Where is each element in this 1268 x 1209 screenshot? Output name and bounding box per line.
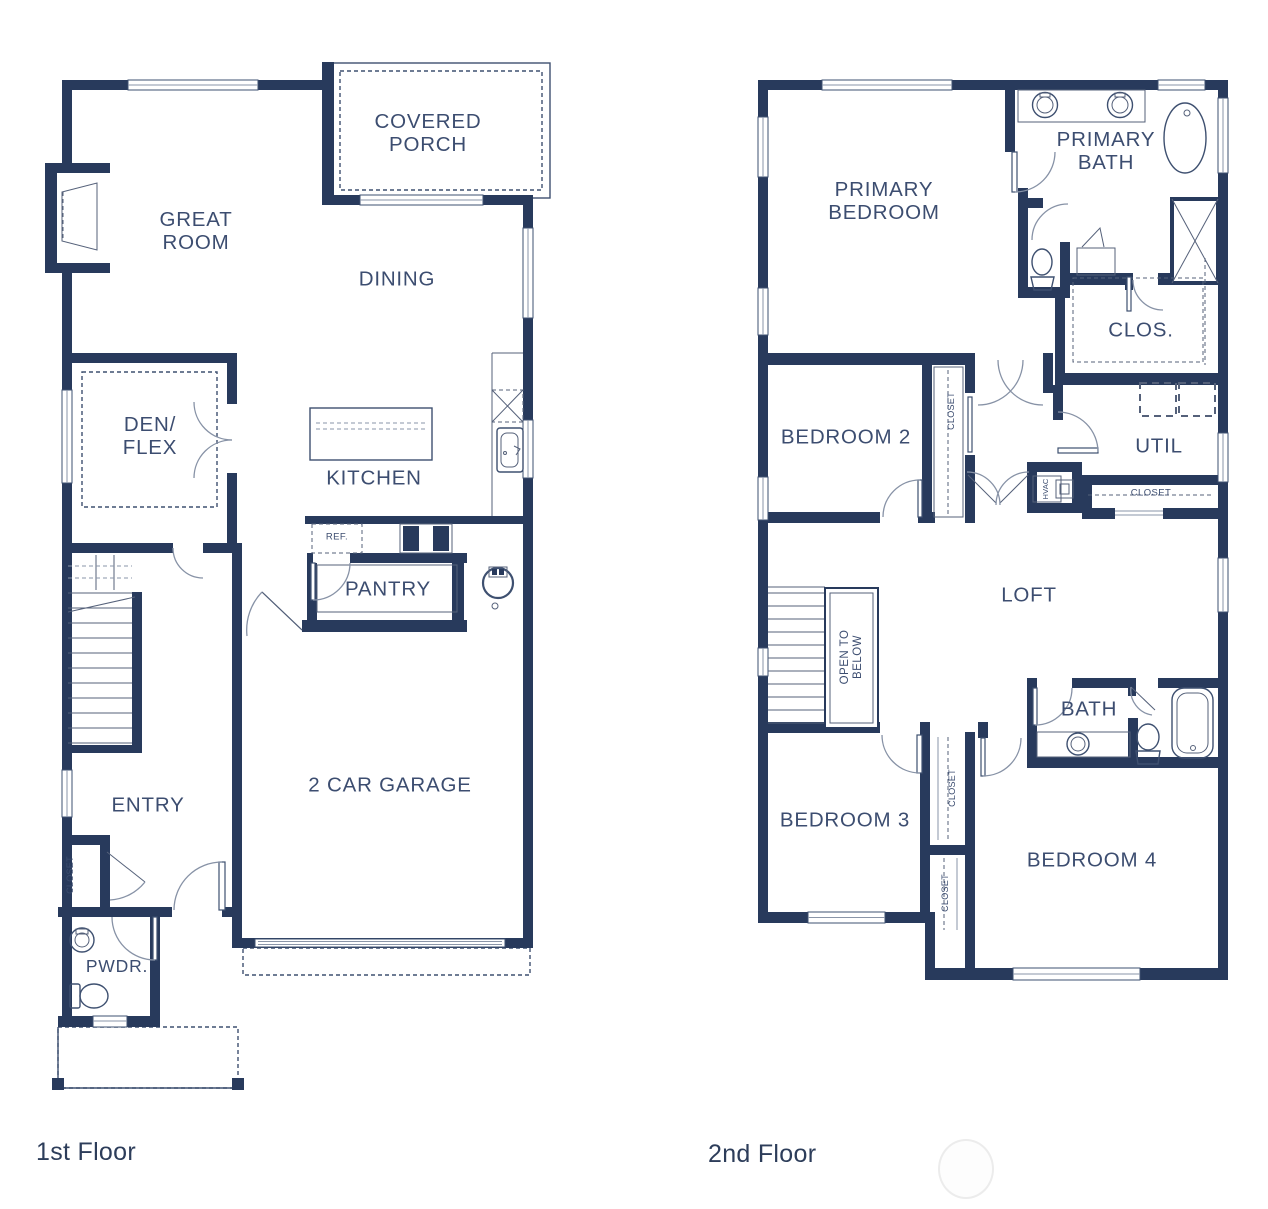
room-label-bedroom4: BEDROOM 4 [1027, 850, 1157, 873]
driveway-apron-outline [243, 948, 530, 975]
primary-toilet-icon [1031, 249, 1054, 290]
fireplace-niche [45, 163, 110, 273]
room-label-great-room: GREAT ROOM [159, 209, 232, 255]
watermark-circle [938, 1139, 994, 1199]
room-label-covered-porch: COVERED PORCH [375, 111, 482, 157]
shower-icon [1172, 199, 1218, 283]
room-label-dining: DINING [359, 269, 436, 292]
bath2-tub-icon [1172, 688, 1213, 758]
floor-plan-graphics [0, 0, 1268, 1209]
kitchen-sink-icon [497, 428, 523, 472]
floor1-walls [52, 62, 533, 1090]
room-label-bath: BATH [1061, 699, 1117, 722]
room-label-garage: 2 CAR GARAGE [308, 775, 471, 798]
primary-tub-icon [1164, 103, 1206, 173]
garage-door [255, 939, 505, 947]
room-label-kitchen: KITCHEN [326, 468, 422, 491]
hvac-unit-icon [1033, 476, 1073, 502]
label-bedroom4-closet: CLOSET [940, 874, 950, 912]
room-label-util: UTIL [1135, 436, 1183, 459]
powder-sink-icon [70, 928, 94, 952]
entry-stoop-outline [58, 1027, 238, 1088]
room-label-pantry: PANTRY [345, 579, 431, 602]
kitchen-island [310, 408, 432, 460]
linen-cabinet [1077, 228, 1115, 275]
room-label-bedroom2: BEDROOM 2 [781, 427, 911, 450]
washer-dryer-boxes [1140, 383, 1215, 416]
room-label-pwdr: PWDR. [86, 957, 148, 977]
stairs-second-floor [768, 587, 825, 723]
room-label-entry: ENTRY [111, 795, 184, 818]
label-hvac: HVAC [1042, 478, 1050, 499]
floor1-plan [45, 62, 550, 1090]
label-refrigerator: REF. [326, 533, 348, 544]
label-bedroom3-closet: CLOSET [947, 769, 957, 807]
powder-toilet-icon [70, 984, 108, 1008]
label-hall-closet: CLOSET [1131, 489, 1171, 500]
bath2-vanity [1037, 732, 1130, 757]
room-label-den-flex: DEN/ FLEX [123, 414, 177, 460]
room-label-clos: CLOS. [1108, 320, 1174, 343]
label-open-to-below: OPEN TO BELOW [839, 630, 865, 685]
label-bedroom2-closet: CLOSET [946, 392, 956, 430]
floor2-caption: 2nd Floor [708, 1140, 816, 1169]
room-label-loft: LOFT [1001, 585, 1057, 608]
primary-vanity [1018, 90, 1145, 122]
range-icon [400, 524, 452, 553]
stairs-first-floor [68, 555, 135, 743]
room-label-primary-bath: PRIMARY BATH [1057, 129, 1156, 175]
room-label-primary-bedroom: PRIMARY BEDROOM [828, 179, 940, 225]
floor-plan-page: COVERED PORCH GREAT ROOM DINING DEN/ FLE… [0, 0, 1268, 1209]
room-label-bedroom3: BEDROOM 3 [780, 810, 910, 833]
floor1-caption: 1st Floor [36, 1138, 136, 1167]
label-entry-closet: CLOSET [65, 856, 75, 894]
water-heater-icon [483, 567, 513, 609]
